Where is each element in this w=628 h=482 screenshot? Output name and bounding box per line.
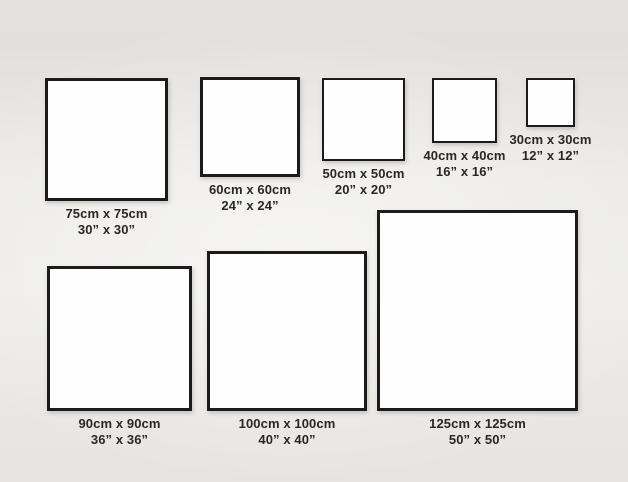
size-label-cm: 40cm x 40cm bbox=[423, 148, 505, 164]
size-label-cm: 100cm x 100cm bbox=[239, 416, 336, 432]
frame-square-50cm bbox=[322, 78, 405, 161]
size-label-inches: 12” x 12” bbox=[509, 148, 591, 164]
frame-item-100cm: 100cm x 100cm 40” x 40” bbox=[207, 251, 367, 447]
size-label-50cm: 50cm x 50cm 20” x 20” bbox=[322, 166, 404, 197]
frame-item-125cm: 125cm x 125cm 50” x 50” bbox=[377, 210, 578, 447]
size-label-cm: 90cm x 90cm bbox=[78, 416, 160, 432]
size-label-inches: 40” x 40” bbox=[239, 432, 336, 448]
size-comparison-diagram: 75cm x 75cm 30” x 30” 60cm x 60cm 24” x … bbox=[0, 0, 628, 482]
size-label-cm: 30cm x 30cm bbox=[509, 132, 591, 148]
frame-square-40cm bbox=[432, 78, 497, 143]
size-label-125cm: 125cm x 125cm 50” x 50” bbox=[429, 416, 526, 447]
frame-item-50cm: 50cm x 50cm 20” x 20” bbox=[322, 78, 405, 197]
frame-item-75cm: 75cm x 75cm 30” x 30” bbox=[45, 78, 168, 237]
size-label-cm: 75cm x 75cm bbox=[65, 206, 147, 222]
size-label-60cm: 60cm x 60cm 24” x 24” bbox=[209, 182, 291, 213]
size-label-40cm: 40cm x 40cm 16” x 16” bbox=[423, 148, 505, 179]
frame-square-125cm bbox=[377, 210, 578, 411]
size-label-inches: 24” x 24” bbox=[209, 198, 291, 214]
size-label-cm: 125cm x 125cm bbox=[429, 416, 526, 432]
size-label-100cm: 100cm x 100cm 40” x 40” bbox=[239, 416, 336, 447]
frame-item-60cm: 60cm x 60cm 24” x 24” bbox=[200, 77, 300, 213]
frame-square-60cm bbox=[200, 77, 300, 177]
frame-item-40cm: 40cm x 40cm 16” x 16” bbox=[432, 78, 497, 179]
size-label-inches: 36” x 36” bbox=[78, 432, 160, 448]
frame-square-30cm bbox=[526, 78, 575, 127]
frame-square-90cm bbox=[47, 266, 192, 411]
frame-item-90cm: 90cm x 90cm 36” x 36” bbox=[47, 266, 192, 447]
size-label-inches: 50” x 50” bbox=[429, 432, 526, 448]
size-label-inches: 20” x 20” bbox=[322, 182, 404, 198]
frame-square-75cm bbox=[45, 78, 168, 201]
size-label-inches: 30” x 30” bbox=[65, 222, 147, 238]
size-label-inches: 16” x 16” bbox=[423, 164, 505, 180]
size-label-cm: 60cm x 60cm bbox=[209, 182, 291, 198]
size-label-30cm: 30cm x 30cm 12” x 12” bbox=[509, 132, 591, 163]
frame-item-30cm: 30cm x 30cm 12” x 12” bbox=[526, 78, 575, 163]
size-label-75cm: 75cm x 75cm 30” x 30” bbox=[65, 206, 147, 237]
size-label-90cm: 90cm x 90cm 36” x 36” bbox=[78, 416, 160, 447]
size-label-cm: 50cm x 50cm bbox=[322, 166, 404, 182]
frame-square-100cm bbox=[207, 251, 367, 411]
